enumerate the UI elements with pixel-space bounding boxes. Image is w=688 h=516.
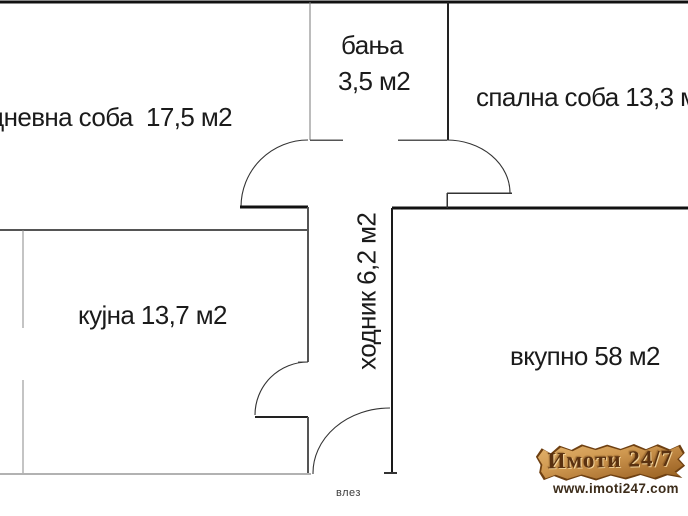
door-arc-entrance — [313, 408, 390, 474]
hallway-label: ходник 6,2 м2 — [353, 205, 382, 377]
brand-logo-text: Имоти 24/7 — [536, 445, 686, 474]
bathroom-area-label: 3,5 м2 — [338, 67, 410, 96]
entrance-label: влез — [336, 487, 361, 499]
living-room-label: дневна соба 17,5 м2 — [0, 103, 232, 132]
kitchen-label: кујна 13,7 м2 — [78, 301, 227, 330]
bedroom-label: спална соба 13,3 м2 — [476, 83, 688, 112]
door-arc-living — [241, 140, 308, 207]
floor-plan: дневна соба 17,5 м2 бања 3,5 м2 спална с… — [0, 0, 688, 516]
door-arc-kitchen — [255, 362, 308, 415]
total-area-label: вкупно 58 м2 — [510, 342, 660, 371]
bathroom-label: бања — [341, 31, 403, 60]
door-arc-bedroom — [447, 140, 510, 193]
website-url-text: www.imoti247.com — [553, 481, 679, 496]
